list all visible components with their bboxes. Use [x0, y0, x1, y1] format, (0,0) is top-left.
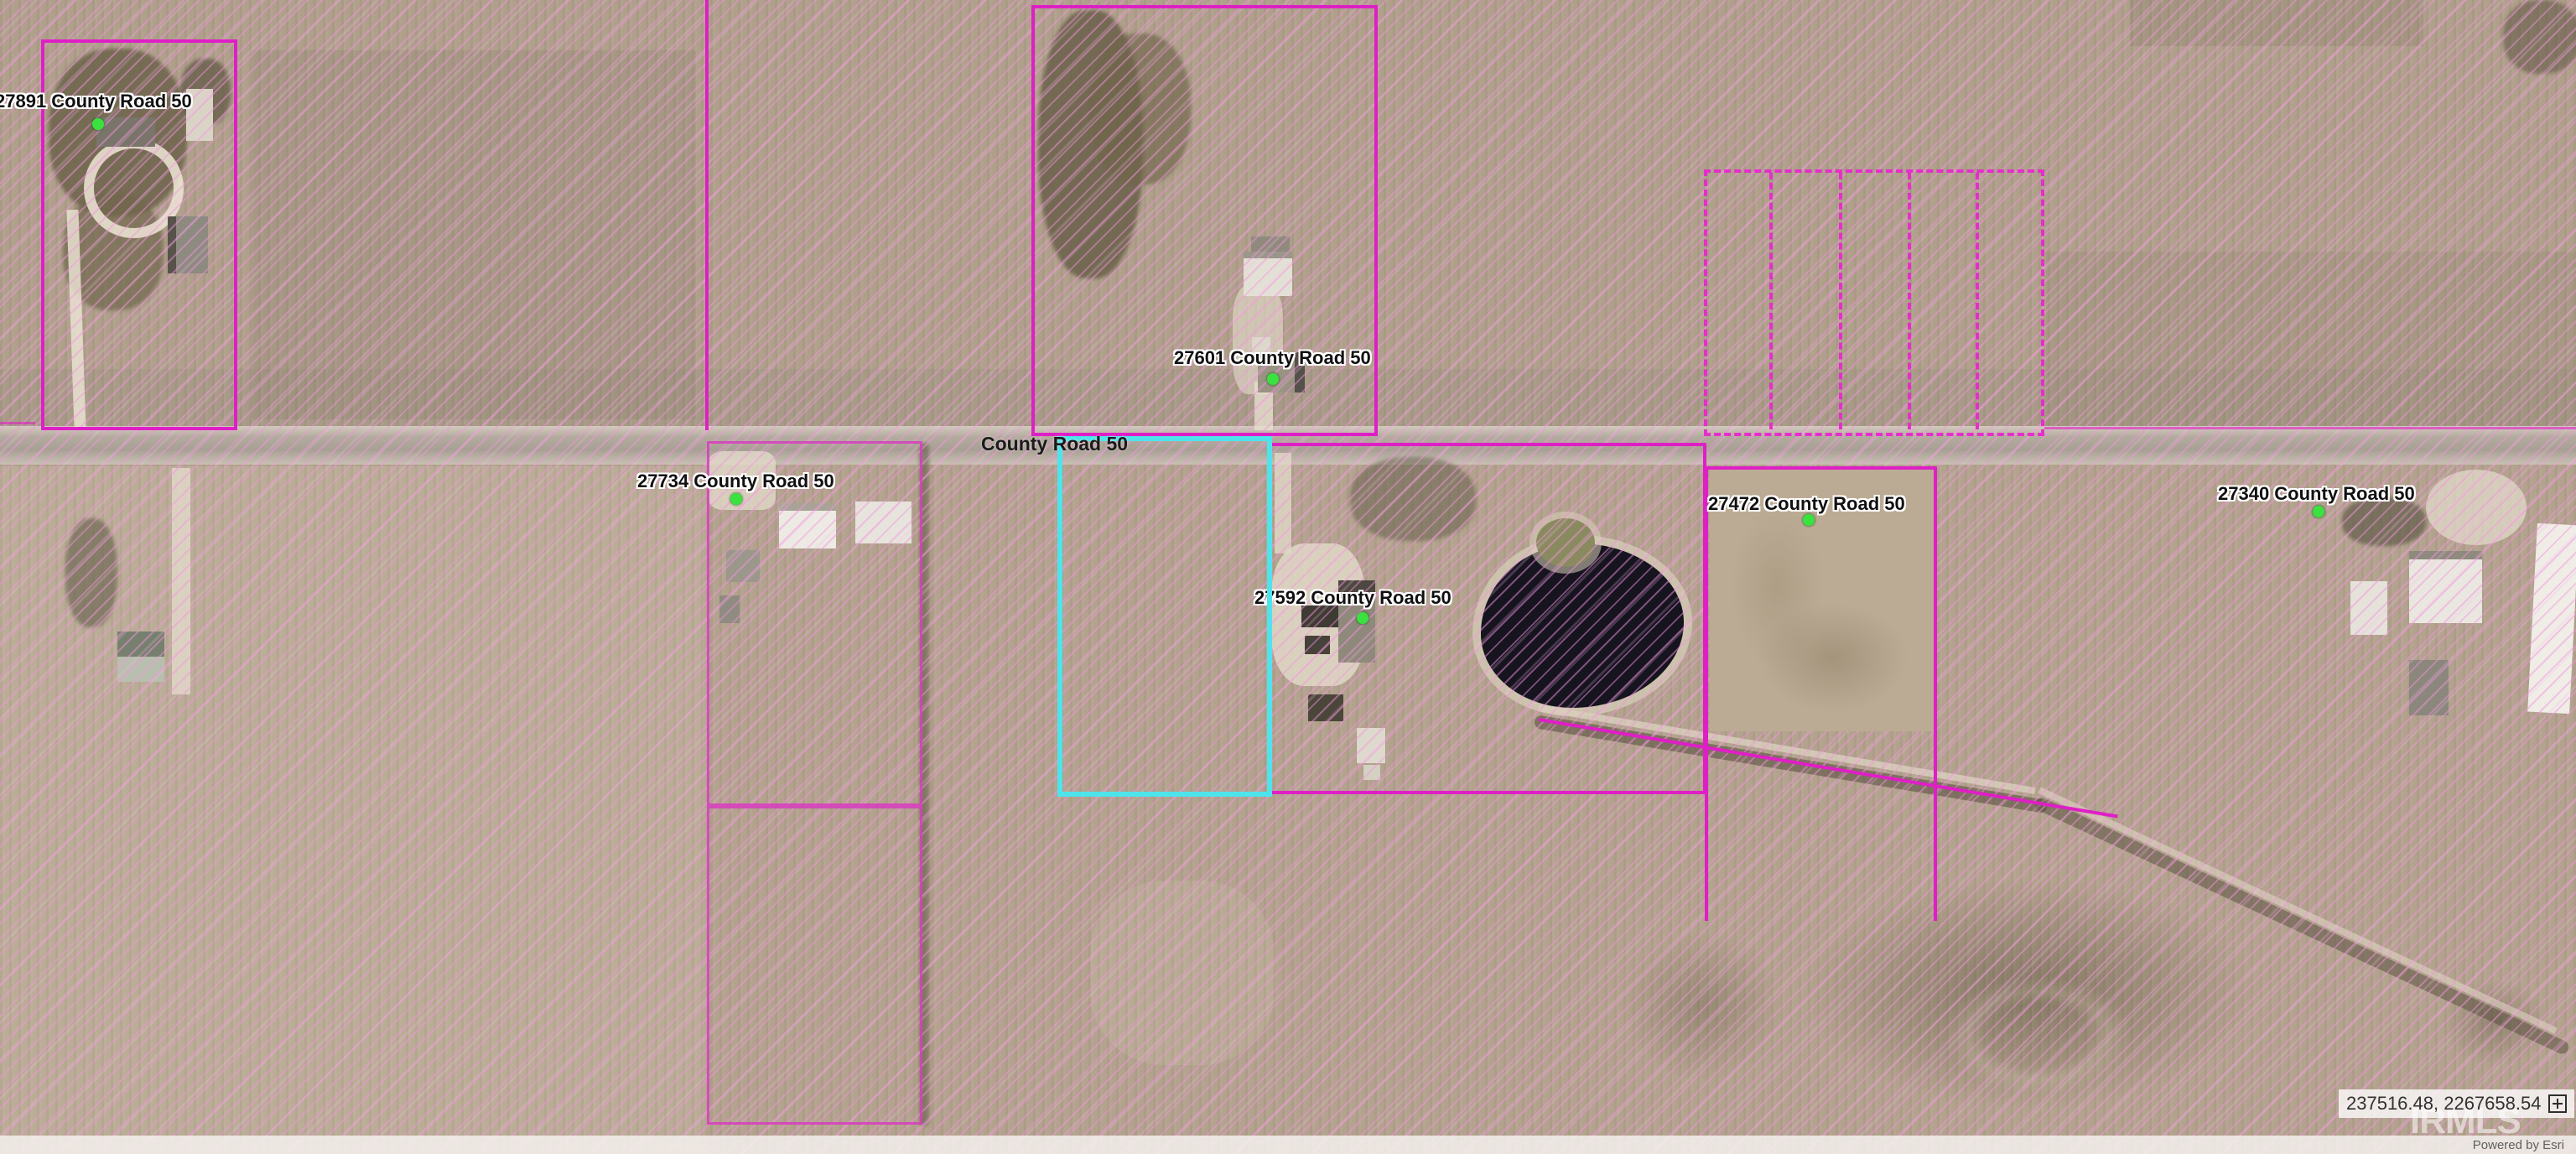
- plus-box-icon[interactable]: [2548, 1094, 2567, 1113]
- parcel-boundary[interactable]: [1704, 169, 2044, 436]
- building: [2409, 551, 2482, 623]
- parcel-boundary[interactable]: [1705, 466, 1937, 470]
- parcel-boundary[interactable]: [1269, 443, 1706, 794]
- tree-clump: [2503, 0, 2576, 74]
- parcel-boundary[interactable]: [1908, 173, 1911, 429]
- parcel-boundary[interactable]: [0, 422, 35, 424]
- building: [117, 657, 164, 682]
- coordinates-readout: 237516.48, 2267658.54: [2339, 1089, 2574, 1118]
- parcel-marker-dot[interactable]: [1803, 514, 1815, 526]
- parcel-address-label: 27734 County Road 50: [637, 470, 834, 492]
- building: [2409, 660, 2449, 715]
- road-name-label: County Road 50: [981, 433, 1128, 455]
- parcel-boundary[interactable]: [1705, 468, 1708, 921]
- coordinates-value: 237516.48, 2267658.54: [2346, 1093, 2541, 1115]
- building: [2350, 581, 2387, 635]
- attribution-bar: Powered by Esri: [0, 1136, 2576, 1154]
- parcel-boundary[interactable]: [2044, 427, 2576, 429]
- tree-clump: [65, 518, 117, 627]
- building: [117, 632, 164, 657]
- driveway: [172, 468, 190, 694]
- parcel-boundary[interactable]: [1934, 468, 1937, 921]
- parcel-address-label: 27472 County Road 50: [1708, 493, 1905, 515]
- parcel-boundary[interactable]: [707, 806, 922, 1125]
- parcel-address-label: 27891 County Road 50: [0, 91, 192, 112]
- parcel-boundary[interactable]: [705, 0, 709, 430]
- parcel-boundary[interactable]: [1031, 5, 1378, 436]
- parcel-address-label: 27601 County Road 50: [1174, 347, 1371, 369]
- parcel-marker-dot[interactable]: [1267, 373, 1279, 385]
- parcel-boundary[interactable]: [1839, 173, 1842, 429]
- farm-yard: [2426, 470, 2527, 545]
- parcel-address-label: 27340 County Road 50: [2218, 483, 2415, 505]
- parcel-marker-dot[interactable]: [92, 118, 104, 130]
- map-canvas[interactable]: 27891 County Road 50 27601 County Road 5…: [0, 0, 2576, 1154]
- parcel-address-label: 27592 County Road 50: [1254, 587, 1452, 609]
- parcel-boundary[interactable]: [1769, 173, 1773, 429]
- selected-parcel-boundary[interactable]: [1057, 436, 1272, 797]
- attribution-text: Powered by Esri: [2473, 1138, 2576, 1152]
- parcel-boundary[interactable]: [1976, 173, 1979, 429]
- parcel-marker-dot[interactable]: [2313, 506, 2324, 517]
- parcel-marker-dot[interactable]: [730, 493, 742, 505]
- parcel-marker-dot[interactable]: [1357, 612, 1368, 624]
